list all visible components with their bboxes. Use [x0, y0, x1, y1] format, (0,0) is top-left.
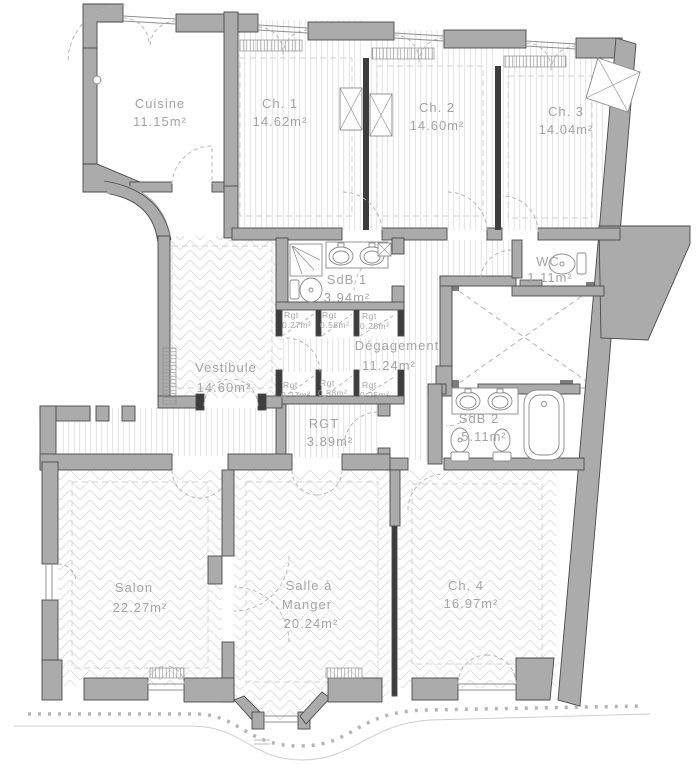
room-label-vestibule: Vestibule [195, 360, 257, 375]
wall-bay-shoulder-right [328, 678, 382, 702]
closet-label: Rgt [320, 378, 335, 388]
room-label-ch3: Ch. 3 [548, 104, 584, 119]
closet-label: Rgt [283, 380, 298, 390]
wall-cuisine-left [83, 48, 97, 166]
room-floor-salon [58, 470, 222, 686]
room-area-vestibule: 14.60m² [197, 380, 252, 395]
room-area-ch3: 14.04m² [539, 122, 594, 137]
wall-salon-salle-divider [222, 470, 234, 556]
floor-plan-svg: Cuisine 11.15m² Ch. 1 14.62m² Ch. 2 14.6… [0, 0, 700, 774]
room-label-sdb2: SdB 2 [459, 411, 499, 426]
wall-facade-pier [444, 30, 526, 48]
sidewalk-curb-line [14, 714, 650, 760]
wall-facade-pier [308, 22, 394, 40]
closet-area: 0.28m² [360, 321, 389, 331]
partition-ch2-ch3 [495, 66, 501, 230]
wall-wc-bottom [512, 286, 604, 296]
wall-bottom-pier [412, 678, 458, 700]
wall-bedroom-band [538, 228, 620, 240]
wall-wc-left [512, 240, 522, 278]
room-label-salle-2: Manger [282, 597, 332, 612]
room-area-sdb2: 5.11m² [461, 429, 507, 444]
closet-area: 0.58m² [318, 388, 347, 398]
wall-bay-shoulder-left [184, 678, 234, 702]
room-area-ch4: 16.97m² [444, 596, 499, 611]
closet-label: Rgt [362, 311, 377, 321]
room-area-salle: 20.24m² [284, 616, 339, 631]
wall-bottom-pier [84, 678, 148, 700]
closet-area: 0.25m² [360, 390, 389, 400]
closet-area: 0.27m² [282, 320, 311, 330]
window-cuisine [123, 16, 176, 24]
room-area-salon: 22.27m² [113, 600, 168, 615]
door-stop-icon [93, 76, 101, 84]
room-label-salle-1: Salle à [286, 578, 333, 593]
wall-neighbor-mass [599, 226, 690, 340]
closet-area: 0.27m² [281, 390, 310, 400]
wall-top-left-corner [83, 4, 123, 52]
floor-degagement-passage [444, 240, 512, 278]
radiator-icon [504, 56, 566, 67]
wall-salon-left [42, 600, 58, 664]
room-label-sdb1: SdB 1 [327, 272, 367, 287]
room-label-ch1: Ch. 1 [262, 96, 298, 111]
wall-landing-bottom [40, 454, 172, 470]
wall-landing-pier [122, 406, 135, 421]
wall-landing-bottom [342, 454, 390, 470]
radiator-icon [326, 668, 362, 678]
room-label-salon: Salon [115, 580, 153, 595]
sidewalk-layer [14, 706, 650, 760]
radiator-icon [163, 348, 176, 404]
partition-ch1-ch2 [363, 58, 369, 230]
wall-salle-ch4-divider [390, 470, 400, 526]
entrance-door-post [196, 394, 204, 410]
wall-courtyard-top [440, 276, 516, 286]
wall-rgt-left [276, 404, 286, 462]
room-area-sdb1: 3.94m² [324, 290, 370, 305]
shower-icon [290, 244, 322, 276]
wall-sdb1-right [392, 238, 404, 254]
floor-plan-page: Cuisine 11.15m² Ch. 1 14.62m² Ch. 2 14.6… [0, 0, 700, 774]
room-area-degagement: 11.24m² [362, 358, 416, 373]
radiator-icon [240, 40, 302, 51]
wall-landing-pier [96, 406, 109, 421]
courtyard-floor [452, 286, 596, 388]
wall-salon-left [42, 462, 58, 564]
wall-bottom-corner-left [42, 660, 62, 700]
wall-facade-pier [176, 14, 258, 32]
wall-curved [108, 187, 164, 240]
window-salon-left [46, 564, 52, 600]
wall-bay-pier [252, 712, 264, 729]
room-label-degagement: Dégagement [355, 338, 439, 353]
room-label-wc: WC [536, 254, 560, 269]
wall-landing-bottom [228, 454, 292, 470]
door-swing-cuisine [172, 146, 212, 184]
vent-box-icon [378, 243, 391, 256]
room-area-ch2: 14.60m² [410, 118, 465, 133]
room-area-ch1: 14.62m² [253, 114, 308, 129]
room-label-ch2: Ch. 2 [419, 100, 455, 115]
room-label-ch4: Ch. 4 [448, 578, 484, 593]
room-label-cuisine: Cuisine [135, 96, 185, 111]
room-area-rgt: 3.89m² [307, 434, 353, 449]
entrance-door-post [258, 394, 266, 410]
room-area-cuisine: 11.15m² [133, 114, 187, 129]
toilet-icon [290, 278, 322, 302]
radiator-icon [372, 48, 434, 59]
closet-label: Rgt [284, 310, 299, 320]
wall-bottom-corner-right [516, 658, 554, 700]
closet-area: 0.58m² [320, 320, 349, 330]
closet-label: Rgt [362, 380, 377, 390]
closet-label: Rgt [322, 310, 337, 320]
room-area-wc: 1.11m² [527, 270, 573, 285]
wall-cuisine-right [224, 12, 238, 188]
wall-sdb2-left [428, 384, 442, 464]
room-label-rgt: RGT [309, 416, 339, 431]
wall-rgt-right [378, 404, 390, 416]
bathtub-icon [524, 390, 564, 460]
wall-sdb1-left [276, 238, 288, 308]
partition-salle-ch4 [392, 526, 397, 696]
wall-chimney-breast [208, 556, 222, 584]
